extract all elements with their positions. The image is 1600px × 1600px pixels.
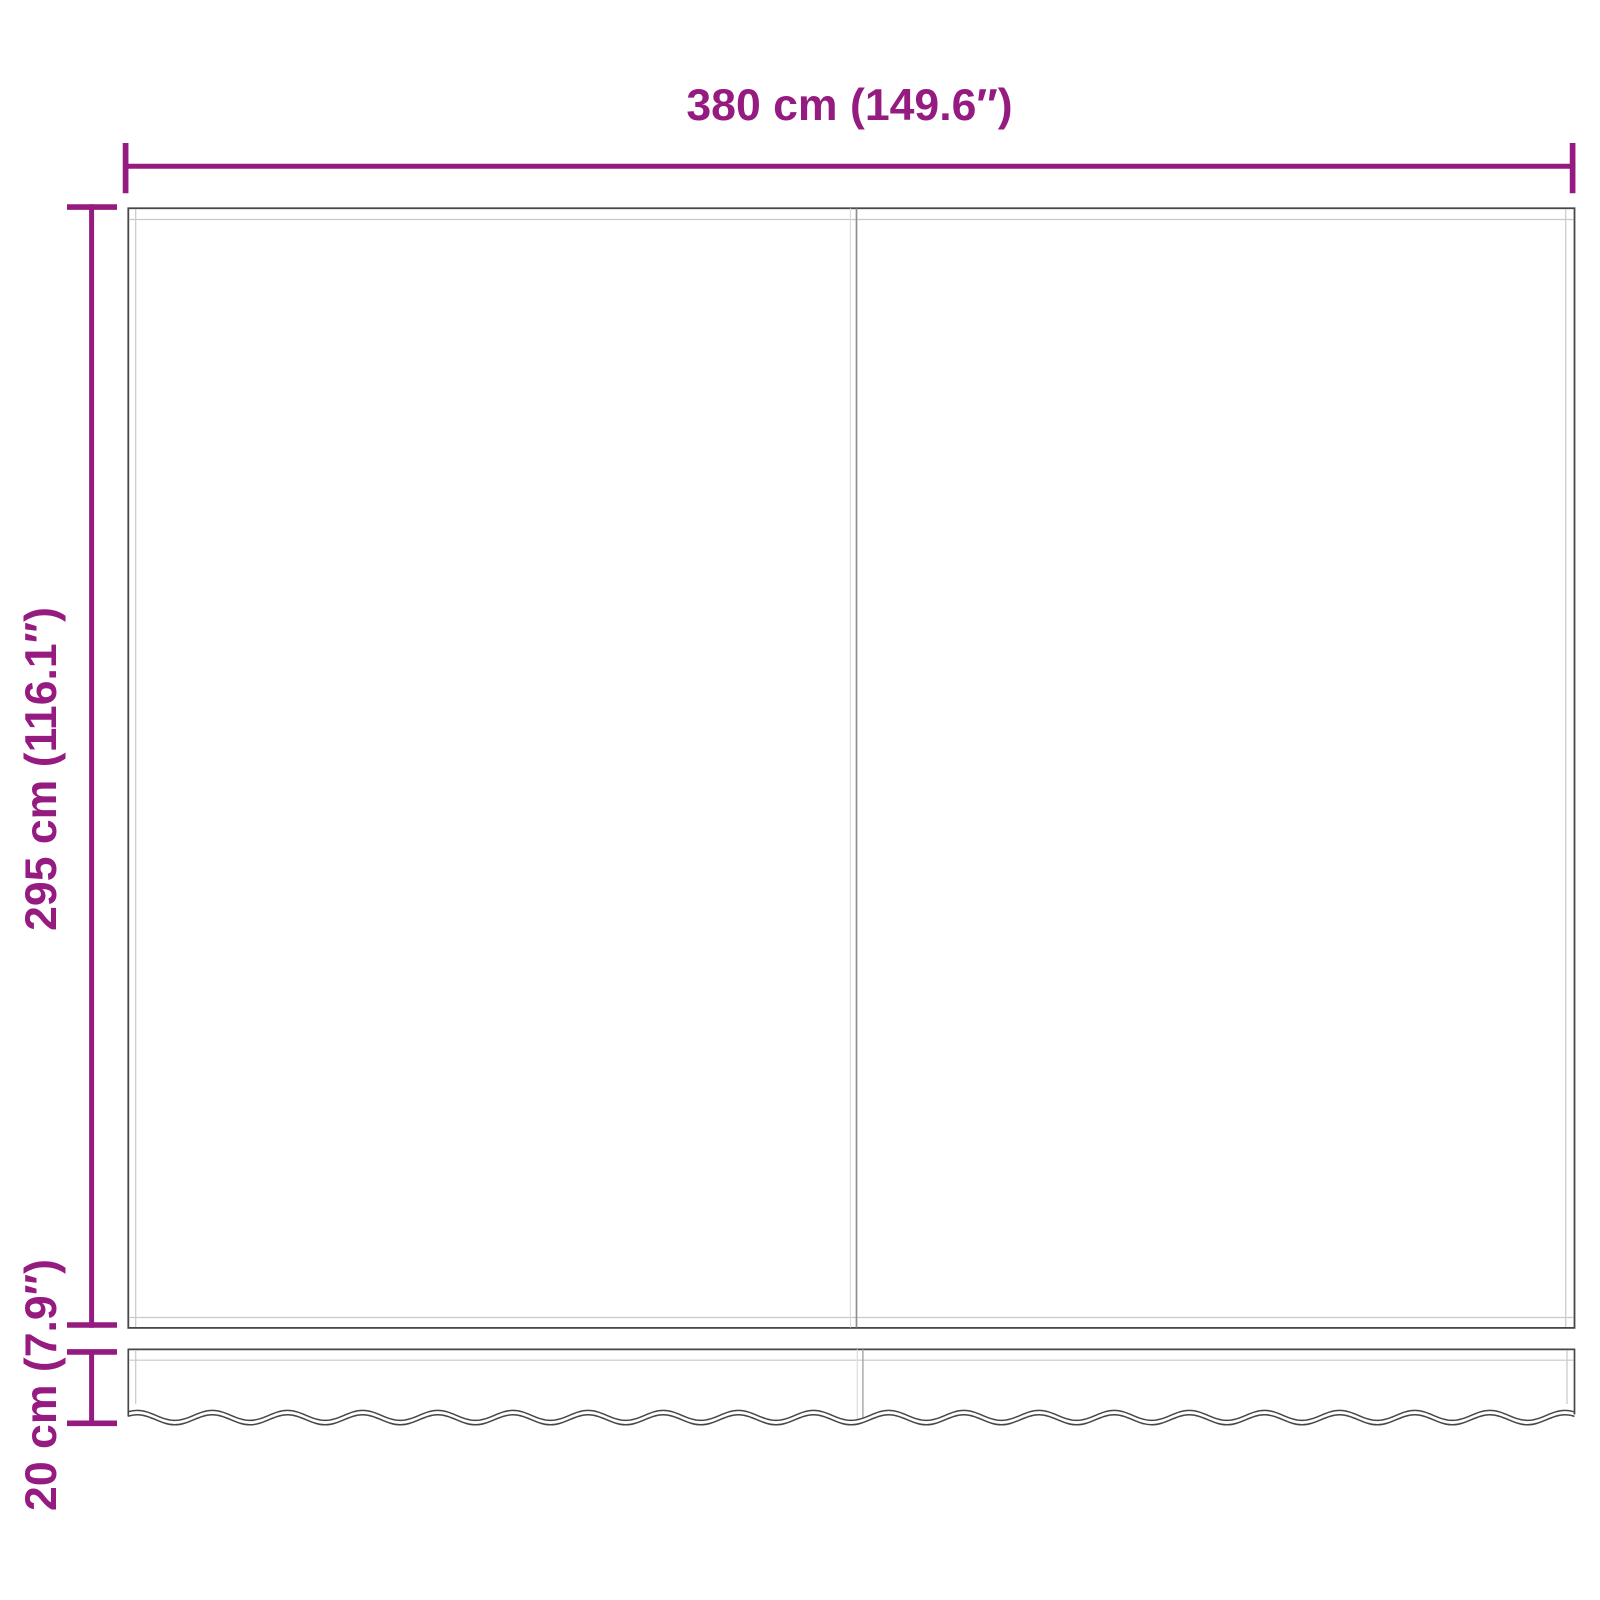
svg-text:295 cm (116.1″): 295 cm (116.1″)	[17, 607, 66, 931]
svg-text:20 cm (7.9″): 20 cm (7.9″)	[17, 1259, 66, 1511]
svg-text:380 cm (149.6″): 380 cm (149.6″)	[686, 81, 1012, 130]
